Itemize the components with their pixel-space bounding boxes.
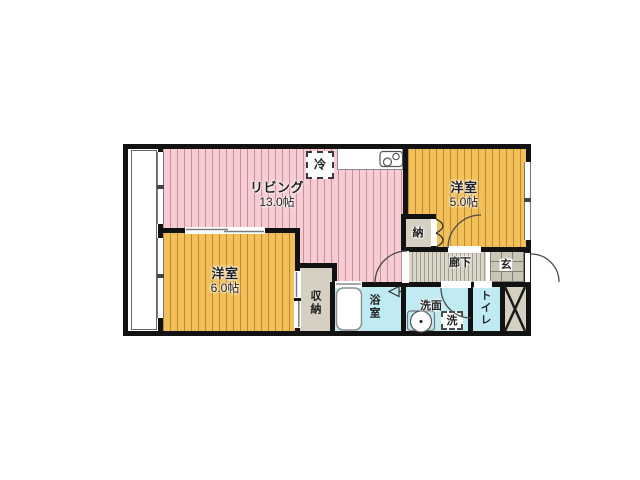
bath-door-gap: [335, 281, 362, 288]
door-arc-entrance: [531, 254, 559, 282]
bedroom-right-doorway: [448, 246, 481, 253]
window-divider: [157, 185, 164, 189]
label-refrigerator: 冷: [314, 158, 326, 171]
living-name: リビング: [250, 181, 304, 196]
bedroom-right-size: 5.0帖: [450, 196, 479, 209]
closet-door-tick: [294, 298, 301, 301]
entrance-doorway: [525, 252, 531, 283]
balcony: [131, 150, 157, 330]
kitchen-counter: [337, 149, 403, 170]
label-washer: 洗: [447, 315, 458, 327]
label-hallway: 廊下: [449, 257, 471, 269]
label-living: リビング 13.0帖: [250, 181, 304, 209]
window-divider: [524, 198, 531, 202]
toilet-doorway: [474, 281, 492, 288]
bedroom-right-name: 洋室: [450, 181, 479, 196]
label-washroom: 洗面: [420, 300, 442, 312]
living-hall-doorway: [402, 251, 409, 283]
storage-small-doorway: [431, 219, 437, 246]
label-bedroom-left: 洋室 6.0帖: [211, 267, 240, 295]
window-bedroom-left: [157, 238, 164, 318]
washroom-doorway: [441, 281, 471, 288]
label-bedroom-right: 洋室 5.0帖: [450, 181, 479, 209]
bedroom-left-size: 6.0帖: [211, 282, 240, 295]
label-entrance: 玄: [500, 259, 513, 271]
label-bathroom: 浴室: [369, 294, 382, 319]
window-divider: [157, 274, 164, 278]
living-size: 13.0帖: [250, 196, 304, 209]
label-closet: 収納: [310, 290, 323, 315]
label-toilet: トイレ: [480, 290, 493, 326]
label-storage-small: 納: [413, 227, 424, 239]
sliding-door-living-bedroom: [185, 227, 265, 234]
bedroom-left-name: 洋室: [211, 267, 240, 282]
floorplan-canvas: リビング 13.0帖 洋室 5.0帖 洋室 6.0帖 納 収納 浴室 トイレ 洗…: [0, 0, 640, 480]
pipe-shaft: [500, 282, 531, 336]
